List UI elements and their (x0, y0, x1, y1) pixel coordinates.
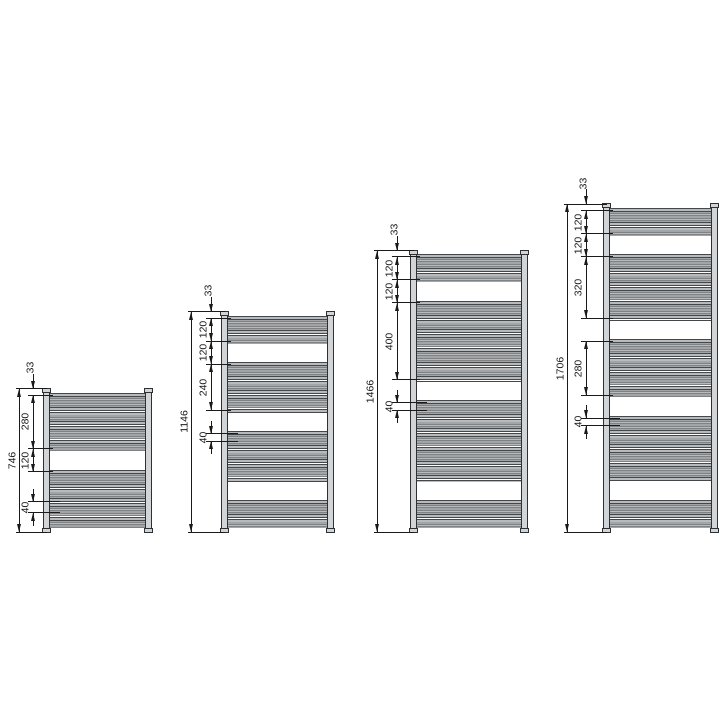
top-offset-label: 33 (25, 344, 38, 392)
section-dim-line (33, 395, 34, 472)
collector-right (521, 251, 528, 532)
rail-group (416, 254, 522, 282)
collector-cap (326, 528, 335, 533)
dim-extension-line (374, 532, 414, 533)
collector-cap (710, 528, 719, 533)
collector-cap (326, 311, 335, 316)
collector-cap (520, 528, 529, 533)
section-dim-label: 320 (573, 264, 586, 312)
radiator-dimension-diagram: 7463328012040114633120120240401466331201… (0, 0, 720, 720)
dim-arrow-up (17, 389, 21, 397)
rail-group (227, 362, 328, 413)
collector-cap (144, 388, 153, 393)
rail-spacing-label: 40 (198, 413, 211, 461)
rail-group (227, 431, 328, 482)
rail-group (609, 500, 712, 528)
collector-cap (710, 203, 719, 208)
dim-extension-line (16, 532, 47, 533)
collector-left (43, 389, 50, 532)
collector-left (603, 204, 610, 532)
section-dim-label: 280 (573, 344, 586, 392)
collector-right (145, 389, 152, 532)
section-dim-label: 120 (20, 436, 33, 484)
rail-group (416, 301, 522, 383)
dim-arrow-up (189, 312, 193, 320)
rail-group (49, 470, 146, 529)
rail-spacing-label: 40 (20, 483, 33, 531)
collector-cap (520, 250, 529, 255)
collector-right (327, 312, 334, 532)
collector-left (221, 312, 228, 532)
overall-dim-label: 1466 (365, 367, 378, 415)
dim-arrow-down (395, 372, 399, 380)
rail-spacing-label: 40 (384, 383, 397, 431)
dim-extension-line (188, 532, 225, 533)
rail-group (609, 254, 712, 320)
dim-extension-line (564, 532, 607, 533)
dim-arrow-up (395, 303, 399, 311)
section-dim-label: 240 (198, 363, 211, 411)
dim-arrow-up (375, 251, 379, 259)
section-dim-label: 400 (384, 317, 397, 365)
rail-group (227, 500, 328, 528)
dim-arrow-down (189, 524, 193, 532)
rail-group (609, 208, 712, 236)
rail-spacing-label: 40 (573, 398, 586, 446)
collector-cap (144, 528, 153, 533)
overall-dim-label: 746 (7, 436, 20, 484)
rail-group (416, 400, 522, 482)
collector-left (410, 251, 417, 532)
rail-group (609, 339, 712, 398)
rail-group (49, 393, 146, 452)
rail-group (609, 416, 712, 482)
rail-group (227, 316, 328, 344)
dim-arrow-down (375, 524, 379, 532)
dim-arrow-up (565, 204, 569, 212)
overall-dim-label: 1146 (179, 398, 192, 446)
rail-group (416, 500, 522, 528)
collector-right (711, 204, 718, 532)
dim-arrow-down (565, 524, 569, 532)
overall-dim-label: 1706 (555, 344, 568, 392)
